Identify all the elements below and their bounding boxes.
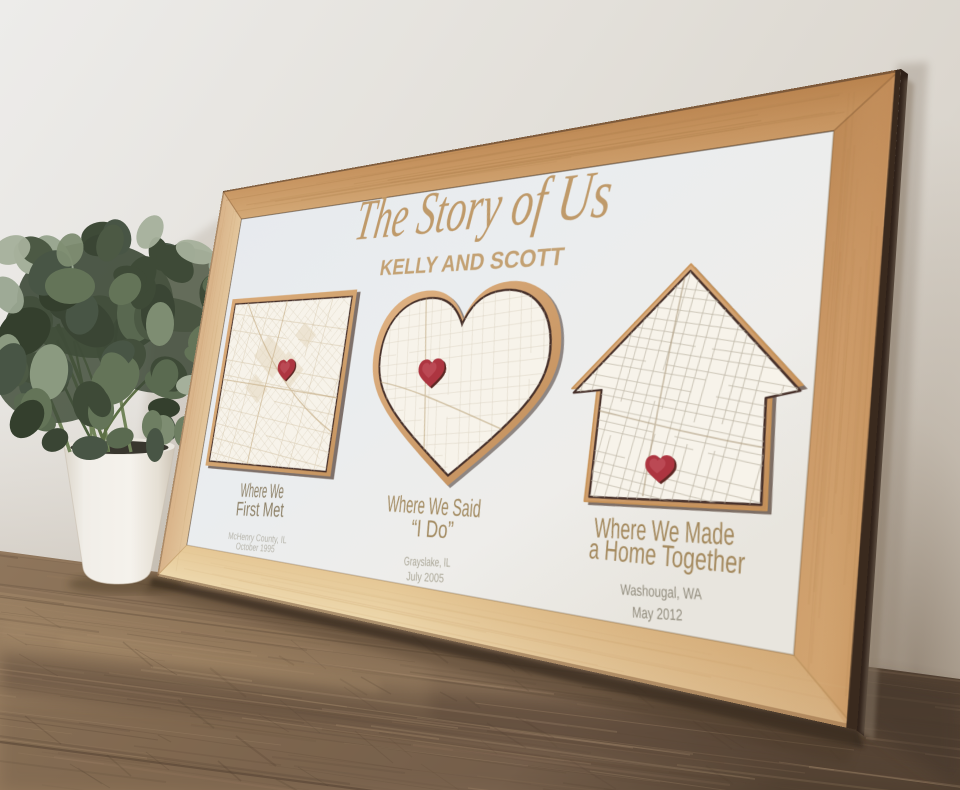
svg-text:July 2005: July 2005 [406, 570, 444, 586]
svg-text:“I Do”: “I Do” [410, 516, 454, 546]
svg-text:May 2012: May 2012 [632, 603, 683, 625]
svg-text:First Met: First Met [235, 498, 285, 521]
svg-text:Grayslake, IL: Grayslake, IL [404, 555, 451, 570]
